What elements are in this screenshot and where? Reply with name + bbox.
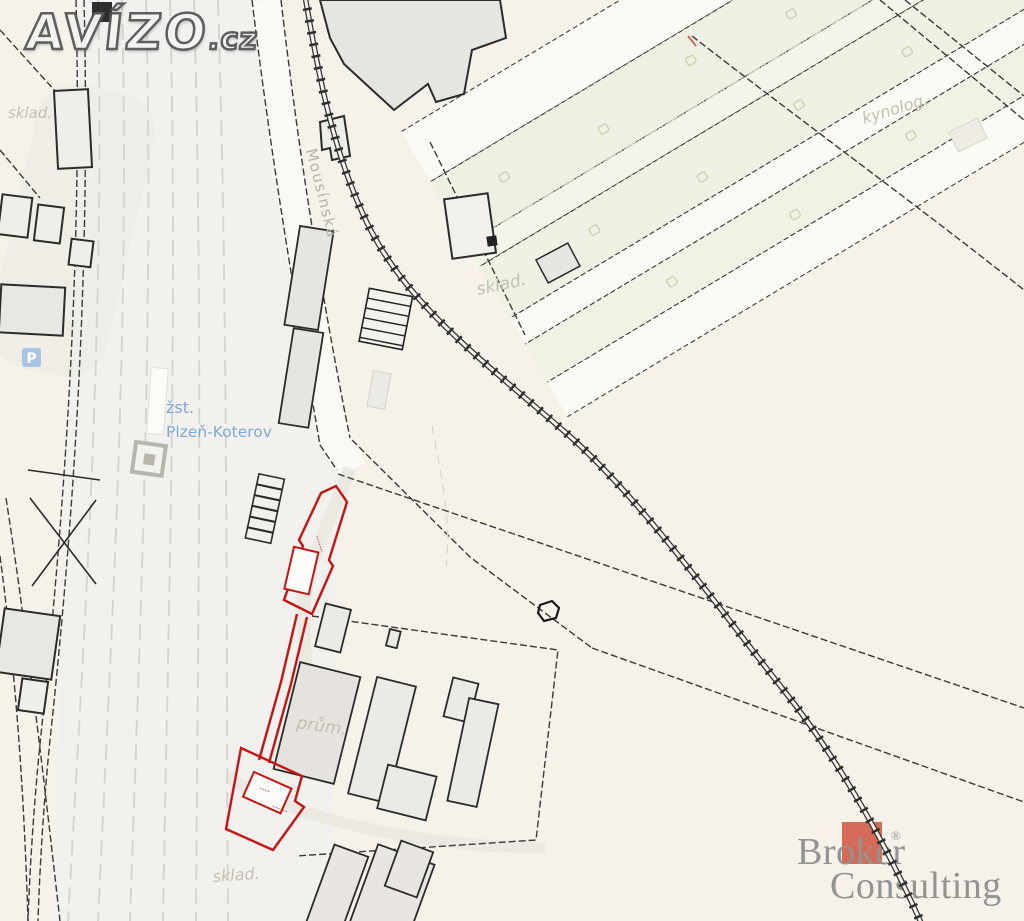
- watermark-brand: AVÍZO: [23, 4, 212, 61]
- watermark-tld: .cz: [206, 22, 259, 57]
- hatched-building: [359, 288, 412, 349]
- label-sklad-top: sklad.: [8, 104, 52, 122]
- cadastral-map[interactable]: sklad. sklad. sklad. kynolog. prům. Mous…: [0, 0, 1024, 921]
- label-station-name: Plzeň-Koterov: [166, 423, 272, 441]
- avizo-watermark: AVÍZO.cz: [23, 4, 262, 61]
- parking-letter: P: [26, 351, 36, 367]
- map-canvas: sklad. sklad. sklad. kynolog. prům. Mous…: [0, 0, 1024, 921]
- station-icon: [132, 442, 166, 476]
- logo-word2: Consulting: [830, 865, 1002, 907]
- label-station-abbr: žst.: [166, 398, 194, 417]
- parking-icon: P: [22, 348, 41, 367]
- logo-registered: ®: [891, 828, 901, 843]
- label-sklad-bottom: sklad.: [212, 864, 260, 886]
